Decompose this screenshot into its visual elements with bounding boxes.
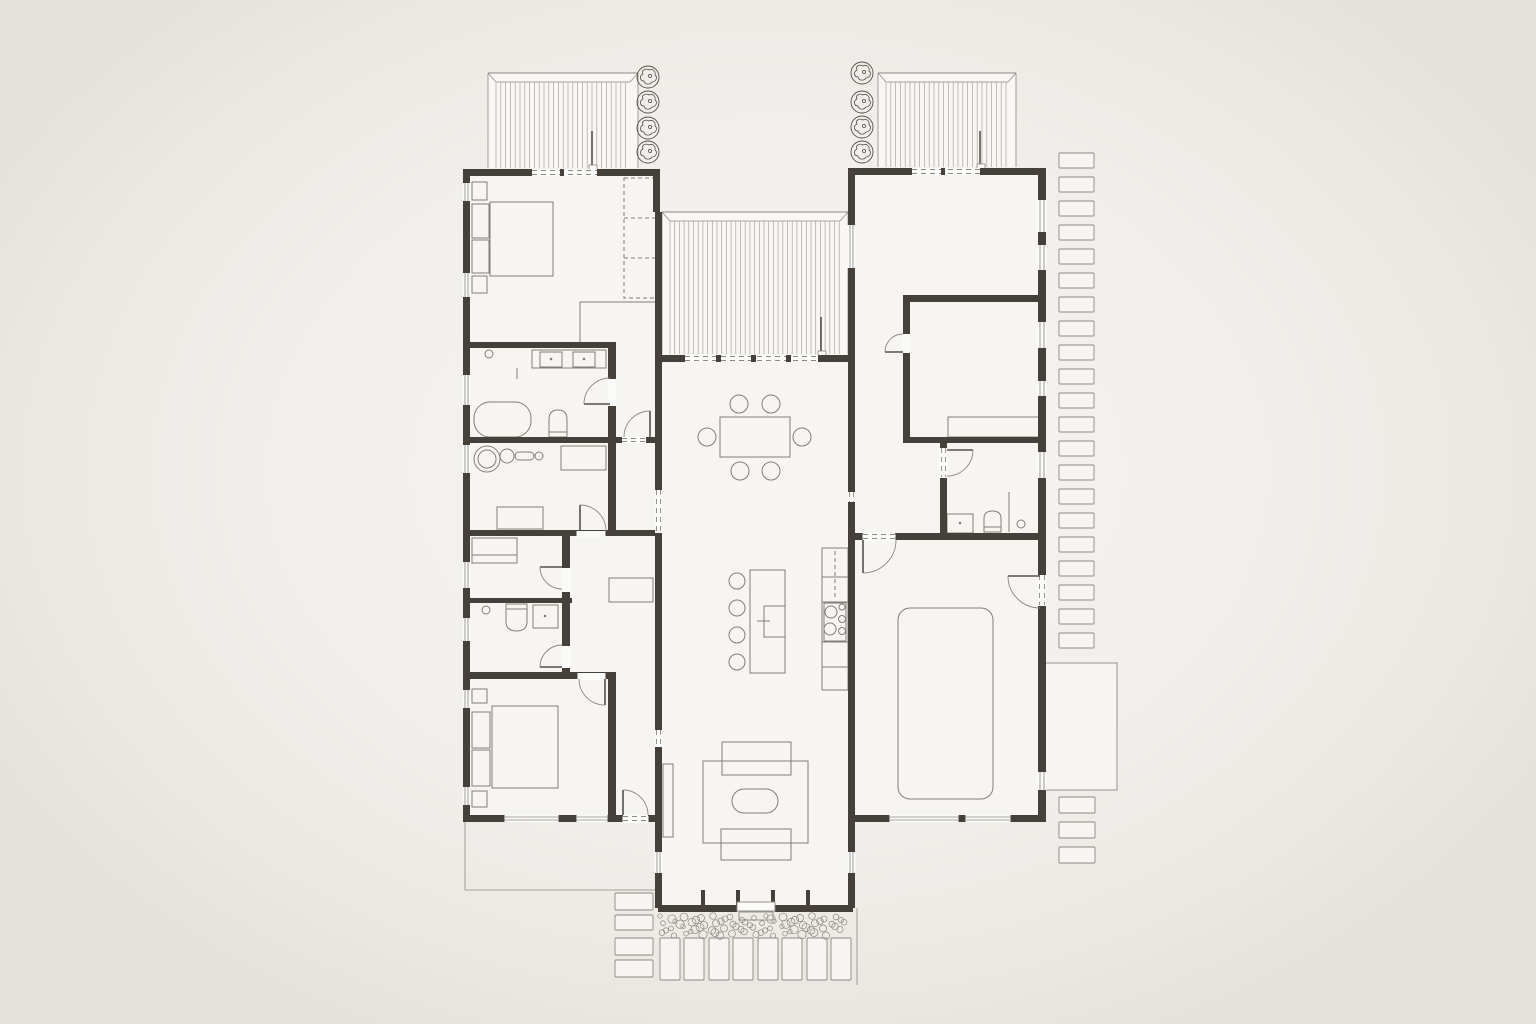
patio-terrace <box>1044 663 1117 790</box>
bath1-sink-dot-2 <box>583 358 586 361</box>
lw-east-upper <box>653 169 660 212</box>
mullion-tick <box>751 355 756 362</box>
deck-northeast-floor <box>878 73 1016 167</box>
lw-window-8 <box>463 787 471 805</box>
mullion-tick <box>786 355 791 362</box>
center-east-window-1 <box>848 225 856 268</box>
pebble <box>837 926 843 932</box>
paver <box>709 938 729 980</box>
lw-window-4 <box>463 445 471 473</box>
stub-east <box>646 437 655 443</box>
stepping-pad <box>1059 297 1094 312</box>
stepping-pad <box>1059 822 1095 838</box>
lw-window-2 <box>463 273 471 297</box>
stub-west <box>616 437 622 443</box>
pebble <box>697 914 704 921</box>
pebble <box>673 919 677 923</box>
mullion-tick <box>716 355 721 362</box>
pebble <box>681 924 685 928</box>
center-south-east <box>775 905 853 912</box>
paver <box>733 938 753 980</box>
pebble <box>819 925 826 932</box>
paver <box>807 938 827 980</box>
stepping-pad <box>1059 417 1094 432</box>
bath1-south <box>463 437 608 443</box>
tree-icon <box>851 62 873 84</box>
pebble <box>671 933 676 938</box>
tree-icon <box>637 66 659 88</box>
lw-window-1 <box>463 183 471 201</box>
paver <box>831 938 851 980</box>
paver <box>782 938 802 980</box>
tree-icon <box>637 91 659 113</box>
stepping-pad <box>1059 847 1095 863</box>
center-east <box>848 212 855 908</box>
mullion-tick <box>658 890 662 905</box>
paver <box>615 893 653 910</box>
floor-plan-canvas <box>0 0 1536 1024</box>
center-west <box>655 212 662 908</box>
stepping-pad <box>1059 369 1094 384</box>
stepping-pad <box>1059 441 1094 456</box>
pebble <box>727 914 733 920</box>
bath2-vanity-dot <box>959 522 962 525</box>
deck-courtyard <box>662 212 848 356</box>
lw-north-west <box>463 169 532 176</box>
rw-window-4 <box>1038 381 1047 396</box>
pebble <box>710 913 717 920</box>
bath1-door-opening <box>608 379 617 406</box>
wc-vanity-dot <box>544 615 547 618</box>
rw-north-east <box>980 168 1045 175</box>
entry-mat <box>737 902 775 911</box>
bath1-sink-dot-1 <box>550 358 553 361</box>
mullion-tick <box>560 169 564 176</box>
lw-north-east <box>597 169 660 176</box>
lw-window-5 <box>463 562 471 588</box>
laundry-south <box>463 530 655 536</box>
pebble <box>833 914 839 920</box>
tree-trunk <box>648 125 651 128</box>
stepping-pad <box>1059 465 1094 480</box>
pebble <box>669 926 674 931</box>
rw-west-upper <box>848 168 855 212</box>
pebble <box>796 914 803 921</box>
stepping-pad <box>1059 537 1094 552</box>
stepping-pad <box>1059 225 1094 240</box>
trees-layer <box>637 62 873 163</box>
mullion-tick <box>849 890 853 905</box>
stepping-pad <box>1059 201 1094 216</box>
mullion-tick <box>941 168 945 175</box>
pebble <box>764 914 768 918</box>
stepping-pad <box>1059 561 1094 576</box>
pebble <box>684 931 689 936</box>
stepping-pad <box>1059 489 1094 504</box>
lw-south-window-2 <box>577 815 608 822</box>
pebble <box>821 916 827 922</box>
deck-northwest <box>488 73 638 170</box>
stepping-pad <box>1059 345 1094 360</box>
tree-icon <box>851 116 873 138</box>
mullion-tick <box>701 890 705 905</box>
pebble <box>680 913 688 921</box>
tree-icon <box>637 117 659 139</box>
tree-trunk <box>862 70 865 73</box>
tree-trunk <box>862 99 865 102</box>
tree-icon <box>851 91 873 113</box>
rw-window-1 <box>1038 200 1047 232</box>
tree-trunk <box>862 149 865 152</box>
paver <box>758 938 778 980</box>
rw-north-west <box>850 168 912 175</box>
pebble <box>720 925 727 932</box>
lw-window-3 <box>463 375 471 405</box>
stepping-pad <box>1059 585 1094 600</box>
pebble <box>768 926 773 931</box>
center-east-window-2 <box>848 852 856 873</box>
bed2-east <box>608 679 616 822</box>
bed2-door-opening <box>578 673 606 680</box>
paver <box>615 938 653 955</box>
courtyard-south-west <box>655 355 687 362</box>
tree-trunk <box>648 99 651 102</box>
lw-window-6 <box>463 618 471 641</box>
room2-south <box>903 437 1045 443</box>
tree-trunk <box>648 149 651 152</box>
deck-northeast <box>878 73 1016 169</box>
stepping-pad <box>1059 797 1095 813</box>
room2-north <box>903 295 1045 302</box>
pebble <box>661 921 666 926</box>
mullion-tick <box>806 890 810 905</box>
tree-icon <box>851 141 873 163</box>
study-south <box>463 598 572 603</box>
rw-window-2 <box>1038 245 1047 270</box>
stepping-pad <box>1059 273 1094 288</box>
pebble <box>699 930 707 938</box>
floor-plan-drawing <box>0 0 1536 1024</box>
stepping-pad <box>1059 633 1094 648</box>
laundry-door-opening <box>577 531 606 537</box>
lw-window-7 <box>463 690 471 708</box>
room2-west <box>903 295 910 443</box>
stepping-pad <box>1059 393 1094 408</box>
tree-trunk <box>648 74 651 77</box>
center-west-window <box>655 852 663 873</box>
pebble-band <box>658 913 847 940</box>
courtyard-south-east <box>818 355 855 362</box>
stepping-pad <box>1059 513 1094 528</box>
pebble <box>770 933 775 938</box>
rw-window-3 <box>1038 322 1047 348</box>
lw-west <box>463 169 470 822</box>
stepping-pad <box>1059 153 1094 168</box>
pebble <box>728 930 735 937</box>
garage-south-window-1 <box>890 815 959 822</box>
lw-south-window-1 <box>505 815 559 822</box>
bath-laundry-east <box>608 347 616 535</box>
paver <box>660 938 680 980</box>
paver <box>615 915 653 930</box>
pebble <box>798 930 806 938</box>
stepping-pad <box>1059 249 1094 264</box>
tree-trunk <box>862 124 865 127</box>
stepping-pad <box>1059 609 1094 624</box>
stepping-pad <box>1059 177 1094 192</box>
room2-door-opening <box>903 334 911 353</box>
study-door-opening <box>562 568 571 592</box>
pebble <box>809 913 816 920</box>
center-south-west <box>658 905 737 912</box>
left-wing-floor <box>470 176 655 815</box>
pebble <box>658 914 662 918</box>
paver <box>684 938 704 980</box>
garage-south-window-2 <box>966 815 1011 822</box>
stepping-pad <box>1059 321 1094 336</box>
tree-icon <box>637 141 659 163</box>
bed1-south <box>463 342 616 348</box>
wc-door-opening <box>562 646 571 668</box>
hall-cased-opening <box>622 437 646 443</box>
center-floor <box>662 362 848 905</box>
rw-window-5 <box>1038 452 1047 478</box>
rw-window-6 <box>1038 772 1047 790</box>
paver <box>615 960 653 977</box>
pebble <box>783 931 788 936</box>
pebble <box>760 921 765 926</box>
